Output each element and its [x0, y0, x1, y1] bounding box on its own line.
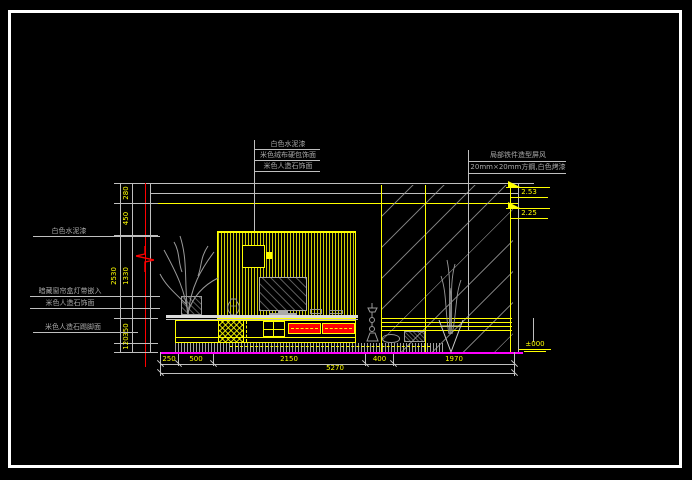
dim-value-280: 280: [123, 183, 130, 203]
cad-elevation-canvas: 白色水泥漆 米色绒布硬包饰面 米色人造石饰面 局部铁件造型屏风 20mm×20m…: [0, 0, 692, 480]
dim-value-5270-overall: 5270: [320, 365, 350, 372]
cabinet-hatched-door: [218, 321, 244, 342]
dim-value-1970: 1970: [394, 356, 514, 363]
wall-lamp-icon: [266, 252, 272, 259]
dim-tick: [114, 318, 158, 319]
floor-level-underline: [524, 351, 546, 352]
label-underline: [254, 160, 320, 161]
counter-object: [310, 309, 322, 314]
material-label-top-2: 米色绒布硬包饰面: [256, 152, 320, 159]
dim-value-120: 120: [123, 334, 130, 352]
label-underline: [468, 173, 566, 174]
grass-vase-icon: [433, 258, 469, 355]
label-leader: [33, 236, 160, 237]
dim-tick: [114, 235, 158, 236]
tv-screen: [259, 277, 307, 311]
drawer-centerline: [291, 328, 318, 329]
material-label-right-1: 局部铁件造型屏风: [470, 152, 566, 159]
floor-level-extension: [533, 318, 534, 342]
material-label-right-2: 20mm×20mm方鋼,白色烤漆: [470, 164, 566, 171]
shelf-divider: [263, 329, 285, 330]
cabinet-bottom-rail: [176, 337, 355, 338]
level-value-lower: 2.25: [512, 210, 546, 217]
round-pot: [382, 334, 400, 343]
picture-frame: [242, 245, 265, 268]
candlestick-icon: [364, 303, 381, 342]
label-leader: [30, 296, 160, 297]
dim-value-1330: 1330: [123, 236, 130, 316]
material-label-top-3: 米色人造石饰面: [256, 163, 320, 170]
dim-value-2530-overall: 2530: [111, 236, 118, 316]
floor-level-value: ±000: [521, 341, 549, 348]
dim-tick: [114, 203, 158, 204]
countertop: [166, 315, 358, 318]
dim-value-500: 500: [179, 356, 213, 363]
level-value-upper: 2.53: [512, 189, 546, 196]
break-zigzag-icon: [136, 246, 154, 272]
label-underline: [468, 161, 566, 162]
drawer-centerline: [325, 328, 352, 329]
dim-value-400: 400: [366, 356, 393, 363]
dim-tick: [114, 352, 158, 353]
ceiling-line: [114, 183, 534, 184]
material-label-left-3: 米色人造石饰面: [30, 300, 110, 307]
material-label-top-1: 白色水泥漆: [256, 141, 320, 148]
dim-overall-line: [160, 373, 514, 374]
stool-hatched: [404, 331, 425, 342]
left-break-line: [145, 183, 146, 367]
level-flag-icon: [508, 181, 520, 187]
cabinet-dashed-divider: [246, 321, 247, 342]
label-underline: [254, 149, 320, 150]
vase-icon: [227, 298, 240, 316]
top-labels-leader-line: [254, 140, 255, 232]
label-leader: [30, 308, 160, 309]
dim-line-left-overall: [120, 183, 121, 352]
level-marker-underline: [510, 218, 548, 219]
floor-level-underline: [519, 349, 551, 350]
dim-value-2150: 2150: [214, 356, 364, 363]
dim-line-left-chain: [132, 183, 133, 352]
plant-pot: [181, 296, 202, 315]
material-label-left-2: 暗藏窗帘盒灯带嵌入: [30, 288, 110, 295]
material-label-left-1: 白色水泥漆: [33, 228, 105, 235]
dim-tick: [114, 343, 158, 344]
dim-value-450: 450: [123, 203, 130, 234]
material-label-left-4: 米色人造石踢脚面: [33, 324, 113, 331]
level-marker-underline: [510, 197, 548, 198]
counter-object: [329, 310, 343, 314]
level-flag-icon: [508, 202, 520, 208]
label-underline: [254, 171, 320, 172]
